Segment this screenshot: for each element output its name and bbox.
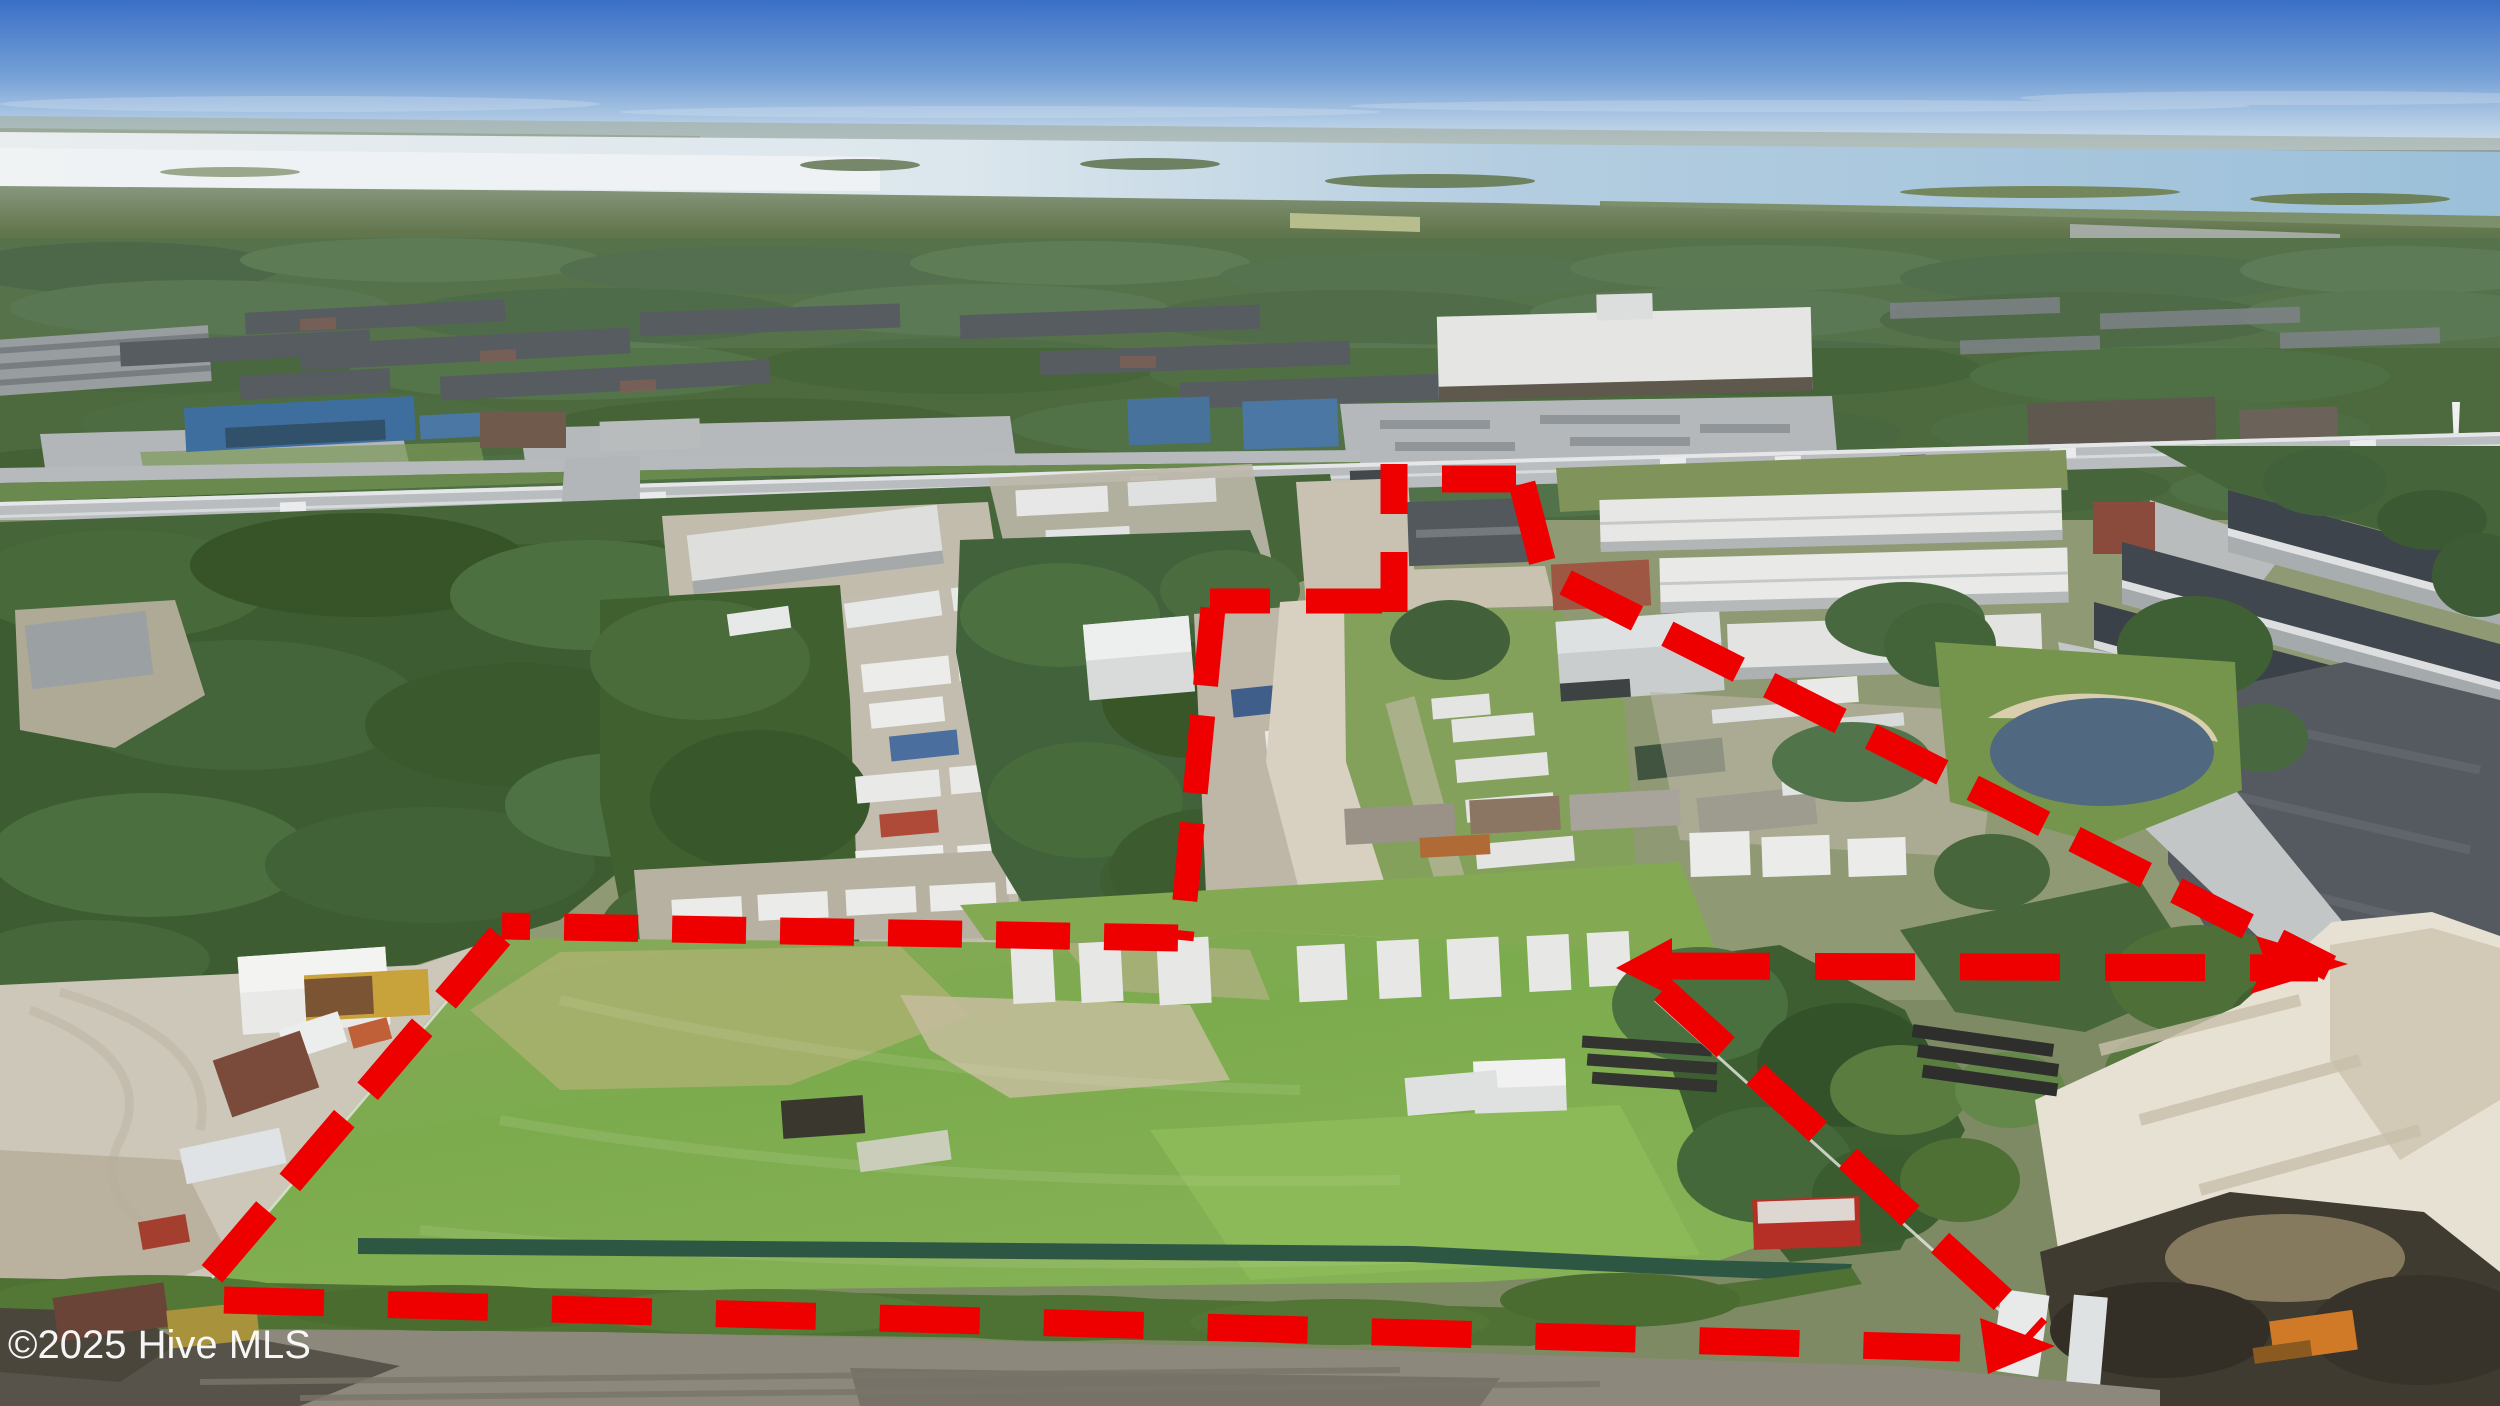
svg-text:©2025 Hive MLS: ©2025 Hive MLS — [8, 1323, 311, 1367]
